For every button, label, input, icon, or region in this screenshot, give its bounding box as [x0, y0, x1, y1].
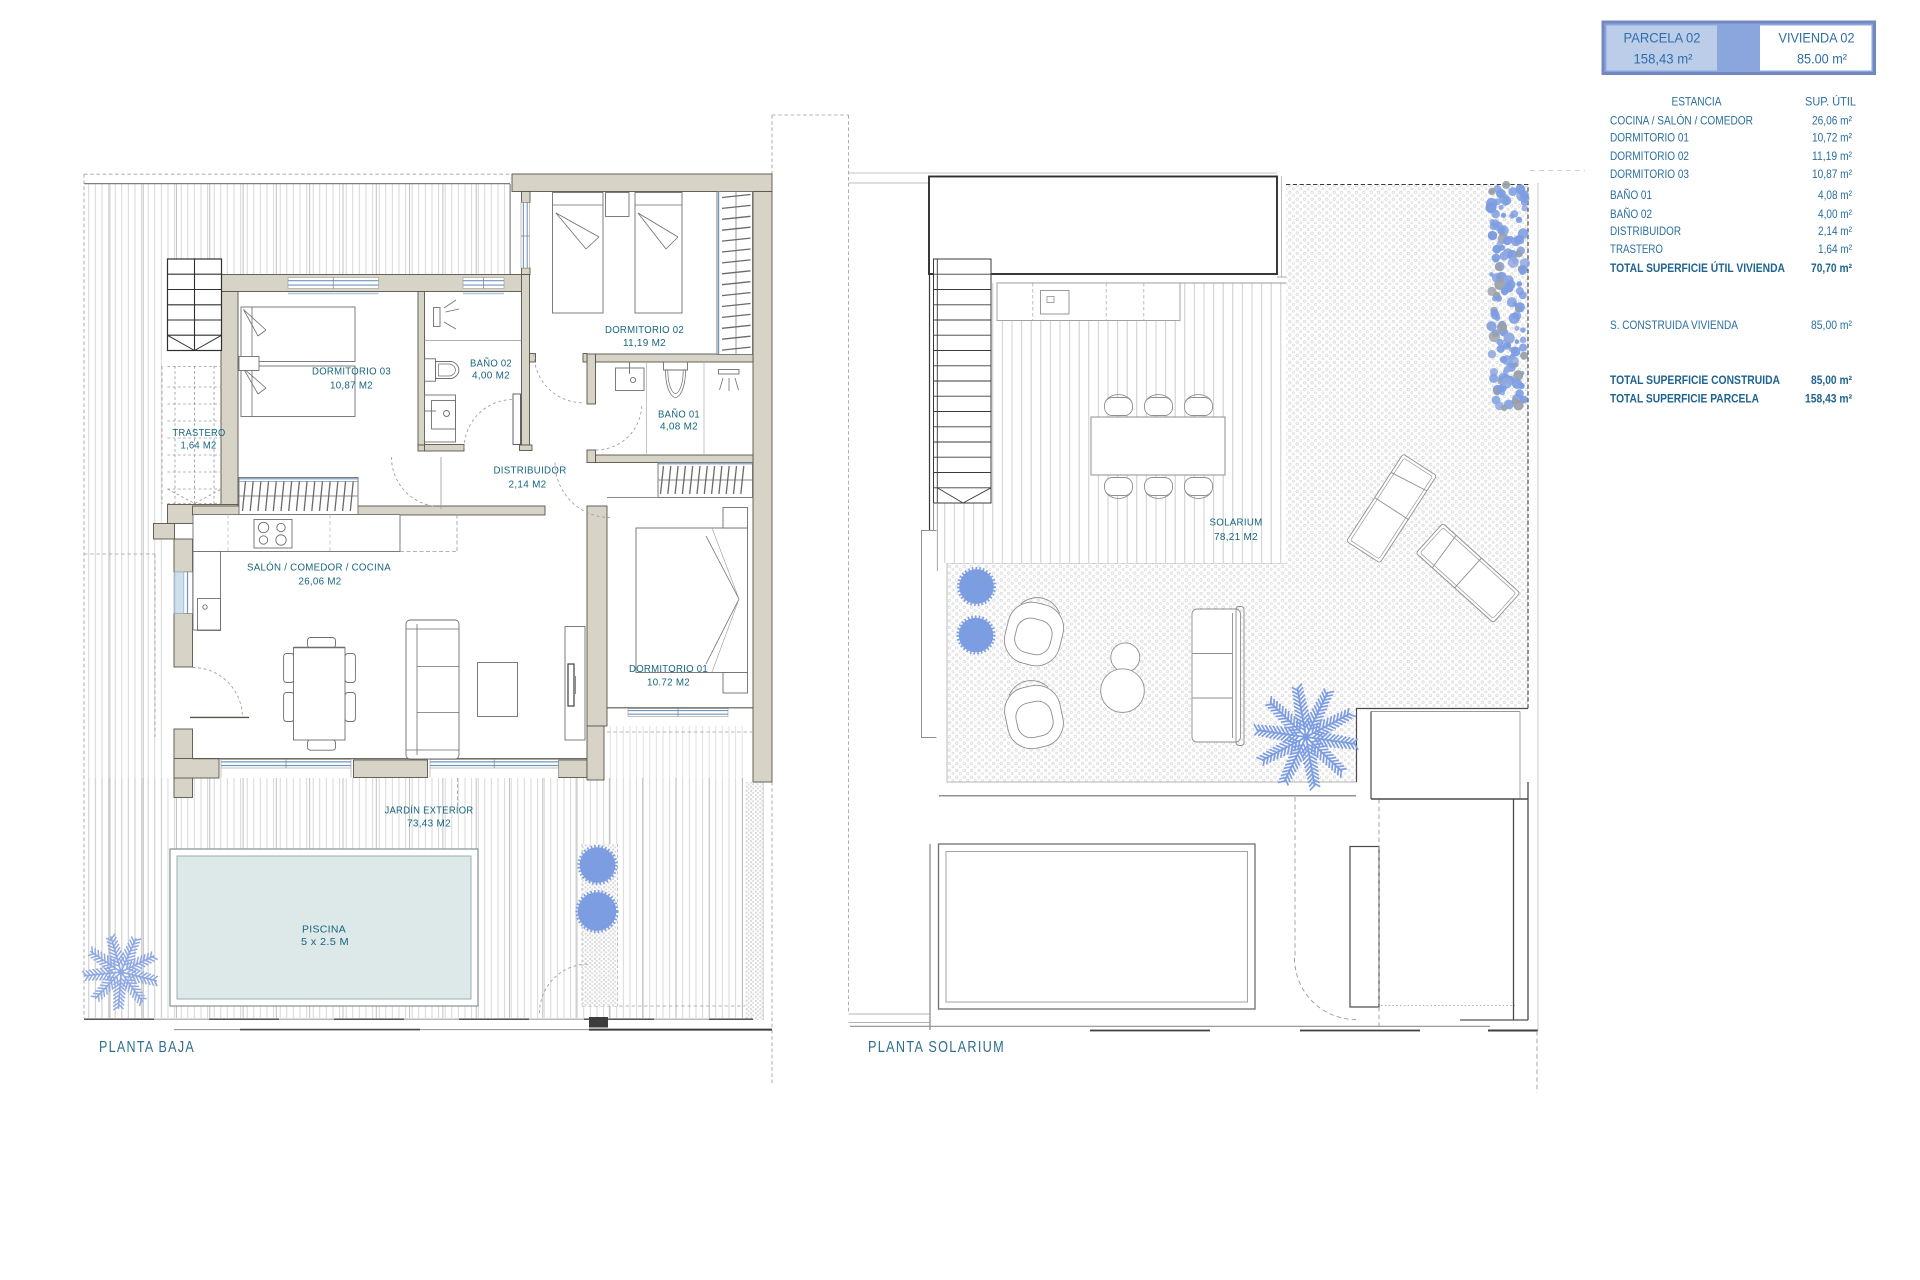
- svg-text:BAÑO 02: BAÑO 02: [470, 357, 512, 370]
- svg-text:4,08 M2: 4,08 M2: [660, 421, 698, 433]
- svg-text:DORMITORIO 03: DORMITORIO 03: [1610, 167, 1689, 181]
- svg-text:DISTRIBUIDOR: DISTRIBUIDOR: [494, 465, 567, 477]
- svg-text:11,19 M2: 11,19 M2: [623, 337, 666, 349]
- svg-text:10.72 M2: 10.72 M2: [647, 677, 690, 689]
- svg-text:26,06 m²: 26,06 m²: [1812, 114, 1852, 128]
- svg-text:26,06 M2: 26,06 M2: [299, 576, 342, 588]
- svg-text:JARDÍN EXTERIOR: JARDÍN EXTERIOR: [385, 804, 474, 817]
- svg-text:DORMITORIO 02: DORMITORIO 02: [605, 324, 684, 336]
- svg-text:PLANTA SOLARIUM: PLANTA SOLARIUM: [868, 1039, 1005, 1056]
- svg-text:10,87 M2: 10,87 M2: [330, 380, 373, 392]
- svg-text:1,64 M2: 1,64 M2: [181, 440, 217, 452]
- svg-text:73,43 M2: 73,43 M2: [407, 818, 451, 830]
- svg-text:BAÑO 01: BAÑO 01: [1610, 188, 1652, 202]
- svg-text:2,14 M2: 2,14 M2: [509, 479, 547, 491]
- svg-text:S. CONSTRUIDA VIVIENDA: S. CONSTRUIDA VIVIENDA: [1610, 318, 1738, 332]
- svg-text:158,43 m²: 158,43 m²: [1634, 52, 1693, 67]
- svg-text:85.00 m²: 85.00 m²: [1797, 52, 1847, 67]
- svg-text:5 x 2.5 M: 5 x 2.5 M: [301, 936, 349, 948]
- svg-text:SALÓN / COMEDOR / COCINA: SALÓN / COMEDOR / COCINA: [247, 561, 391, 574]
- svg-text:10,72 m²: 10,72 m²: [1812, 131, 1852, 145]
- svg-text:158,43 m²: 158,43 m²: [1805, 391, 1852, 405]
- svg-text:4,08 m²: 4,08 m²: [1818, 188, 1852, 202]
- svg-text:SOLARIUM: SOLARIUM: [1210, 517, 1263, 529]
- svg-text:85,00 m²: 85,00 m²: [1811, 373, 1852, 387]
- svg-text:TOTAL SUPERFICIE PARCELA: TOTAL SUPERFICIE PARCELA: [1610, 391, 1759, 405]
- svg-text:11,19 m²: 11,19 m²: [1812, 149, 1852, 163]
- svg-text:DORMITORIO 02: DORMITORIO 02: [1610, 149, 1689, 163]
- svg-text:TOTAL SUPERFICIE CONSTRUIDA: TOTAL SUPERFICIE CONSTRUIDA: [1610, 373, 1780, 387]
- svg-text:VIVIENDA 02: VIVIENDA 02: [1779, 31, 1855, 46]
- svg-text:4,00 M2: 4,00 M2: [472, 370, 510, 382]
- svg-text:BAÑO 02: BAÑO 02: [1610, 207, 1652, 221]
- svg-text:TRASTERO: TRASTERO: [173, 427, 226, 439]
- svg-text:DORMITORIO 01: DORMITORIO 01: [629, 663, 708, 675]
- svg-text:85,00 m²: 85,00 m²: [1811, 318, 1852, 332]
- svg-text:ESTANCIA: ESTANCIA: [1672, 95, 1722, 109]
- svg-text:DISTRIBUIDOR: DISTRIBUIDOR: [1610, 224, 1681, 238]
- svg-text:78,21 M2: 78,21 M2: [1214, 531, 1258, 543]
- svg-text:10,87 m²: 10,87 m²: [1812, 167, 1852, 181]
- svg-text:BAÑO 01: BAÑO 01: [658, 408, 700, 421]
- svg-text:PISCINA: PISCINA: [302, 924, 346, 936]
- svg-text:PARCELA 02: PARCELA 02: [1624, 31, 1701, 46]
- svg-text:2,14 m²: 2,14 m²: [1818, 224, 1852, 238]
- svg-text:1,64 m²: 1,64 m²: [1818, 242, 1852, 256]
- svg-text:4,00 m²: 4,00 m²: [1818, 207, 1852, 221]
- svg-text:SUP. ÚTIL: SUP. ÚTIL: [1805, 94, 1856, 109]
- svg-text:COCINA / SALÓN / COMEDOR: COCINA / SALÓN / COMEDOR: [1610, 113, 1753, 128]
- svg-text:DORMITORIO 03: DORMITORIO 03: [312, 366, 391, 378]
- svg-text:DORMITORIO 01: DORMITORIO 01: [1610, 131, 1689, 145]
- svg-text:TRASTERO: TRASTERO: [1610, 242, 1663, 256]
- svg-text:PLANTA BAJA: PLANTA BAJA: [99, 1039, 195, 1056]
- svg-text:70,70 m²: 70,70 m²: [1811, 261, 1852, 275]
- svg-text:TOTAL SUPERFICIE ÚTIL VIVIENDA: TOTAL SUPERFICIE ÚTIL VIVIENDA: [1610, 260, 1785, 275]
